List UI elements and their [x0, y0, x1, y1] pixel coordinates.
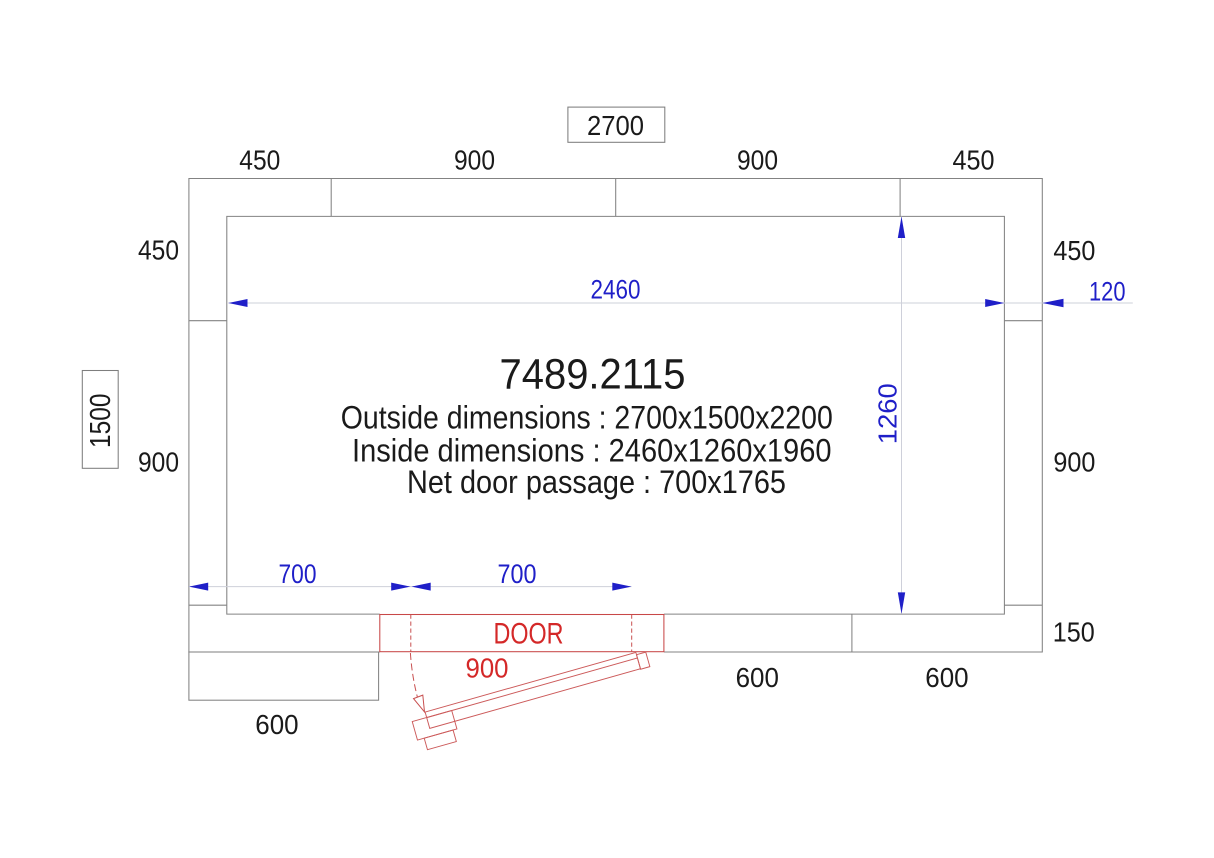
svg-text:900: 900 [138, 446, 179, 477]
svg-text:Outside dimensions : 2700x1500: Outside dimensions : 2700x1500x2200 [341, 399, 833, 435]
svg-text:450: 450 [138, 235, 179, 266]
svg-text:7489.2115: 7489.2115 [500, 350, 686, 398]
svg-text:120: 120 [1089, 276, 1126, 306]
svg-text:2700: 2700 [587, 110, 644, 141]
svg-text:DOOR: DOOR [494, 618, 564, 651]
svg-text:600: 600 [255, 709, 298, 740]
svg-text:600: 600 [925, 662, 968, 693]
svg-text:700: 700 [279, 559, 317, 589]
svg-text:700: 700 [498, 559, 537, 589]
svg-text:1260: 1260 [872, 383, 902, 444]
svg-text:450: 450 [1053, 235, 1095, 266]
svg-text:450: 450 [953, 145, 995, 176]
svg-text:2460: 2460 [591, 275, 641, 305]
svg-text:600: 600 [736, 662, 779, 693]
svg-text:450: 450 [239, 145, 280, 176]
svg-text:900: 900 [466, 653, 509, 684]
svg-text:150: 150 [1053, 616, 1095, 647]
svg-text:900: 900 [454, 145, 495, 176]
svg-text:Net door passage : 700x1765: Net door passage : 700x1765 [407, 464, 786, 500]
svg-text:1500: 1500 [85, 394, 117, 449]
svg-text:900: 900 [1053, 446, 1095, 477]
svg-text:900: 900 [737, 145, 778, 176]
